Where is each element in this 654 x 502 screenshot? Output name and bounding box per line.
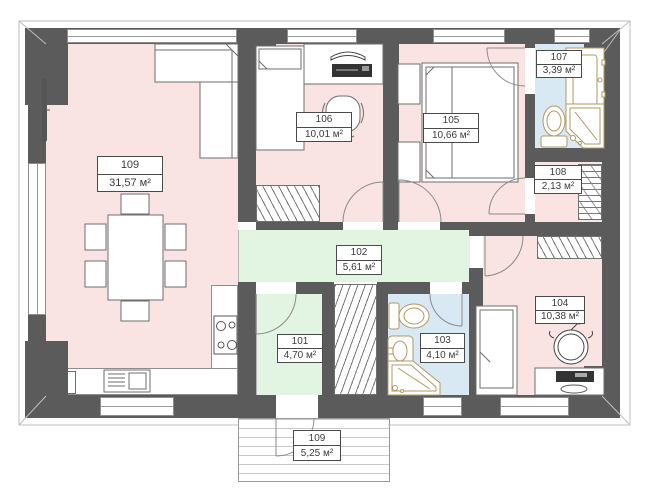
pier-bottom-left [25, 341, 68, 418]
room-number: 109 [294, 431, 340, 446]
room-label-106: 106 10,01 м² [296, 112, 352, 142]
floor-plan: x [0, 0, 654, 502]
room-area: 5,25 м² [294, 446, 340, 460]
kitchen-counter-right [211, 285, 238, 369]
wall-107-108 [535, 148, 604, 162]
wall-closet-103 [377, 294, 388, 395]
room-label-103: 103 4,10 м² [420, 333, 465, 363]
wall-109-101 [238, 294, 256, 395]
wall-corridor-bottom-d [388, 282, 430, 294]
wall-109-106 [238, 44, 256, 222]
window-left-living [28, 163, 46, 315]
wall-104-left [469, 268, 483, 395]
room-area: 3,39 м² [537, 65, 581, 78]
wall-corridor-bottom-b [296, 282, 334, 294]
room-number: 108 [535, 166, 581, 180]
room-area: 10,01 м² [297, 128, 351, 142]
room-area: 31,57 м² [98, 175, 162, 192]
window-top-room106 [287, 29, 357, 43]
wall-corridor-bottom-a [238, 282, 256, 294]
wall-corridor-bottom-e [462, 282, 469, 294]
room-area: 10,66 м² [424, 129, 478, 143]
room-label-105: 105 10,66 м² [423, 113, 479, 143]
room-number: 105 [424, 114, 478, 129]
wall-corridor-bottom-c [377, 282, 388, 294]
window-top-room107 [554, 29, 590, 43]
room-area: 2,13 м² [535, 180, 581, 193]
wall-corridor-top-c [440, 222, 469, 230]
wall-105-107-a [525, 44, 535, 48]
window-top-living [67, 29, 237, 43]
room-label-104: 104 10,38 м² [535, 296, 585, 324]
room-label-109: 109 31,57 м² [97, 156, 163, 192]
room-label-102: 102 5,61 м² [336, 245, 382, 275]
room-109-living-kitchen-floor [46, 44, 238, 395]
wall-corridor-top-b [383, 222, 398, 230]
room-number: 103 [421, 334, 464, 349]
window-bottom-room104 [500, 397, 569, 416]
hall-closet-hatch [334, 284, 377, 395]
room-label-101: 101 4,70 м² [277, 334, 323, 363]
wardrobe-hatch-room106 [256, 185, 320, 222]
room-area: 5,61 м² [337, 261, 381, 275]
window-bottom-kitchen [100, 397, 174, 416]
window-top-room105 [433, 29, 505, 43]
room-label-108: 108 2,13 м² [534, 165, 582, 194]
room-number: 106 [297, 113, 351, 128]
room-number: 102 [337, 246, 381, 261]
window-bottom-room103 [423, 397, 462, 416]
room-number: 109 [98, 157, 162, 175]
room-number: 107 [537, 51, 581, 65]
pier-109-106 [238, 44, 276, 64]
room-label-107: 107 3,39 м² [536, 50, 582, 78]
wall-106-105 [383, 44, 399, 222]
room-area: 4,10 м² [421, 349, 464, 363]
entrance-door-opening [276, 395, 318, 418]
pier-bottom-right [584, 366, 620, 418]
room-number: 104 [536, 297, 584, 311]
room-area: 10,38 м² [536, 311, 584, 324]
wall-corridor-top-a [256, 222, 343, 230]
wall-101-closet [322, 294, 334, 395]
wardrobe-hatch-room104 [537, 236, 602, 259]
wall-right [602, 44, 620, 395]
room-number: 101 [278, 335, 322, 349]
pier-top-left [25, 28, 68, 105]
room-label-porch: 109 5,25 м² [293, 430, 341, 461]
room-area: 4,70 м² [278, 349, 322, 362]
wall-104-top [469, 222, 620, 236]
